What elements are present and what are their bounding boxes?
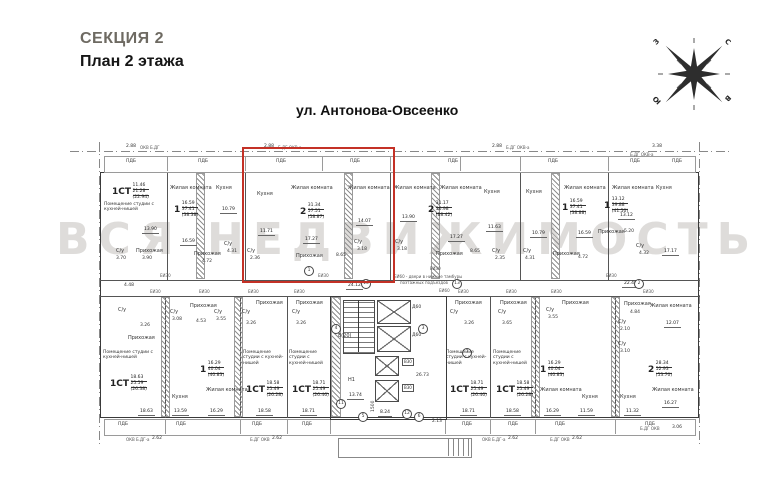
apartment-label: 2 31.1756.98(58.42) — [428, 202, 452, 219]
apartment-label: 1 16.2940.04(40.83) — [200, 362, 224, 379]
section-title: СЕКЦИЯ 2 — [80, 30, 164, 48]
dim: 16.59 — [576, 232, 593, 238]
balcony-label: ПДБ — [508, 422, 518, 427]
room-area: 3.70 — [116, 257, 126, 262]
room-label-kitchen: Кухня — [216, 186, 232, 192]
room-label-studio: Помещение студии с кухней-нишей — [104, 202, 156, 213]
dim: 26.73 — [416, 374, 429, 379]
room-label-hall: Прихожая — [296, 301, 323, 307]
room-area: 3.55 — [216, 318, 226, 323]
room-area: 4.53 — [196, 320, 206, 325]
marker-circle: 3 — [418, 324, 428, 334]
room-label-wc: С/у — [292, 310, 300, 316]
dim: 2.88 — [492, 145, 502, 150]
wall — [287, 296, 288, 418]
room-label-hall: Прихожая — [128, 336, 155, 342]
apartment-label: 1 16.2940.04(40.83) — [540, 362, 564, 379]
room-label-wc: С/у — [118, 308, 126, 314]
dim-vertical: 1500 — [372, 401, 377, 412]
dim: 2.88 — [126, 145, 136, 150]
balcony-separator — [240, 419, 241, 434]
lift-door-mark: Д60 — [412, 306, 421, 311]
room-label-living: Жилая комната — [394, 186, 436, 192]
staircase-divider — [358, 300, 359, 352]
dim: 2.13 — [432, 420, 442, 425]
window-mark: Б.ДГ ОКВ — [250, 437, 270, 442]
balcony-label: ПДБ — [126, 159, 136, 164]
lift-door-mark: Д60 — [412, 334, 421, 339]
fire-door-mark: ЕИ30 — [294, 289, 305, 294]
shaft-hatch — [235, 298, 242, 416]
room-area: 3.26 — [246, 322, 256, 327]
room-label-wc: С/у — [214, 310, 222, 316]
dim: 2.62 — [508, 437, 518, 442]
apartment-label: 1СТ 18.6325.59(26.38) — [110, 376, 147, 393]
apartment-label: 1 16.5937.41(38.88) — [562, 200, 586, 217]
room-label-wc: С/у — [498, 310, 506, 316]
room-label-wc: С/у — [618, 342, 626, 348]
dim: 16.29 — [544, 410, 561, 416]
room-label-hall: Прихожая — [190, 304, 217, 310]
dim: 2.62 — [572, 437, 582, 442]
apartment-label: 1СТ 18.7125.49(26.46) — [292, 382, 329, 399]
stair-id: Н1 — [348, 378, 355, 384]
wall — [608, 172, 609, 280]
room-label-hall: Прихожая — [436, 252, 463, 258]
balcony-label: ПДБ — [630, 159, 640, 164]
apartment-label: 1СТ 18.5825.49(26.28) — [246, 382, 283, 399]
room-label-living: Жилая комната — [612, 186, 654, 192]
window-mark: ОКВ Б.ДГ-а — [482, 437, 505, 442]
vent-mark: В30 — [402, 358, 414, 366]
room-area: 8.65 — [470, 250, 480, 255]
elevator-shaft — [377, 326, 411, 352]
floor-plan-page: { "header":{"section":"СЕКЦИЯ 2","floor"… — [0, 0, 784, 500]
compass-rose: З С Ю В — [650, 30, 738, 118]
balcony-label: ПДБ — [198, 159, 208, 164]
room-label-kitchen: Кухня — [172, 395, 188, 401]
room-area: 4.72 — [202, 260, 212, 265]
dim: 3.06 — [672, 426, 682, 431]
dim: 3.38 — [652, 145, 662, 150]
room-area: 3.90 — [142, 257, 152, 262]
room-area: 2.35 — [495, 257, 505, 262]
balcony-separator — [608, 156, 609, 171]
dim: 11.32 — [624, 410, 641, 416]
door-note-line1: ЕИ60 - двери в нижние тамбуры — [394, 274, 462, 279]
dim: 8.24 — [378, 411, 392, 417]
room-label-wc: С/у — [450, 310, 458, 316]
room-label-wc: С/у — [636, 244, 644, 250]
room-area: 3.55 — [548, 316, 558, 321]
balcony-separator — [535, 419, 536, 434]
balcony-separator — [615, 419, 616, 434]
balcony-label: ПДБ — [176, 422, 186, 427]
balcony-separator — [287, 419, 288, 434]
room-label-living: Жилая комната — [564, 186, 606, 192]
room-label-studio: Помещение студии с кухней-нишей — [289, 350, 329, 366]
window-mark: Б.ДГ ОКВ — [640, 426, 660, 431]
balcony-label: ПДБ — [555, 422, 565, 427]
room-label-wc: С/у — [170, 310, 178, 316]
room-label-wc: С/у — [618, 320, 626, 326]
room-area: 3.18 — [397, 248, 407, 253]
dim: 18.63 — [138, 410, 155, 416]
room-area: 3.26 — [464, 322, 474, 327]
room-label-hall: Прихожая — [598, 230, 625, 236]
room-label-wc: С/у — [395, 240, 403, 246]
room-area: 5.20 — [624, 230, 634, 235]
dim: 18.58 — [504, 410, 521, 416]
balcony-label: ПДБ — [252, 422, 262, 427]
room-label-studio: Помещение студии с кухней-нишей — [243, 350, 285, 366]
shaft-hatch — [612, 298, 619, 416]
dim: 11.59 — [578, 410, 595, 416]
room-label-hall: Прихожая — [256, 301, 283, 307]
stair-flight-label: 8(20) — [338, 334, 351, 340]
room-area: 3.08 — [172, 318, 182, 323]
room-label-hall: Прихожая — [624, 302, 651, 308]
shaft-hatch — [162, 298, 169, 416]
fire-door-mark: ЕИ30 — [248, 289, 259, 294]
room-label-hall: Прихожая — [136, 249, 163, 255]
room-label-living: Жилая комната — [540, 388, 582, 394]
dim: 4.48 — [124, 284, 134, 289]
balcony-separator — [490, 419, 491, 434]
dim: 12.07 — [664, 322, 681, 328]
street-title: ул. Антонова-Овсеенко — [296, 102, 458, 118]
dim: 10.79 — [220, 208, 237, 214]
fire-door-mark: ЕИ30 — [160, 273, 171, 278]
room-label-hall: Прихожая — [562, 301, 589, 307]
room-label-wc: С/у — [116, 249, 124, 255]
room-label-kitchen: Кухня — [582, 395, 598, 401]
balcony-separator — [460, 156, 461, 171]
dim: 17.27 — [448, 236, 465, 242]
apartment-label: 1 16.5937.41(38.38) — [174, 202, 198, 219]
fire-door-mark: ЕИ30 — [430, 266, 441, 271]
marker-circle: 11 — [336, 399, 346, 409]
room-label-studio: Помещение студии с кухней-нишей — [446, 350, 488, 366]
apartment-label: 1СТ 11.4621.28(22.94) — [112, 184, 149, 201]
marker-circle: 12 — [402, 409, 412, 419]
elevator-shaft — [377, 300, 411, 324]
balcony-separator — [445, 419, 446, 434]
balcony-separator — [520, 156, 521, 171]
floor-plan-drawing: ПДБ ПДБ ПДБ ПДБ ПДБ ПДБ ПДБ ПДБ 2.88 ОКВ… — [100, 150, 700, 442]
window-mark: Б.ДГ ОКВ — [550, 437, 570, 442]
window-mark: Б.ДГ ОКВ-а — [630, 152, 653, 157]
room-label-kitchen: Кухня — [526, 190, 542, 196]
apartment-label: 1СТ 18.5825.49(26.28) — [496, 382, 533, 399]
room-area: 4.84 — [630, 311, 640, 316]
marker-circle: 4 — [331, 324, 341, 334]
window-mark: ОКВ Б.ДГ-а — [126, 437, 149, 442]
wall — [520, 172, 521, 280]
marker-circle: 5 — [358, 412, 368, 422]
room-label-hall: Прихожая — [455, 301, 482, 307]
dim: 13.59 — [172, 410, 189, 416]
dim: 16.29 — [208, 410, 225, 416]
room-area: 4.31 — [525, 257, 535, 262]
room-area: 4.72 — [578, 256, 588, 261]
room-label-wc: С/у — [546, 308, 554, 314]
marker-circle: 6 — [414, 412, 424, 422]
highlight-rectangle — [242, 147, 395, 283]
room-label-living: Жилая комната — [170, 186, 212, 192]
room-label-wc: С/у — [242, 310, 250, 316]
wall — [490, 296, 491, 418]
dim: 18.71 — [460, 410, 477, 416]
elevator-shaft — [375, 380, 399, 402]
room-label-living: Жилая комната — [652, 388, 694, 394]
room-label-studio: Помещение студии с кухней-нишей — [493, 350, 533, 366]
fire-door-mark-60: ЕИ60 — [439, 288, 450, 293]
balcony-separator — [330, 419, 331, 434]
marker-circle: 2 — [634, 279, 644, 289]
fire-door-mark: ЕИ30 — [606, 273, 617, 278]
room-label-kitchen: Кухня — [484, 190, 500, 196]
room-area: 3.10 — [620, 350, 630, 355]
axis-line-right — [699, 142, 700, 444]
room-area: 4.32 — [639, 252, 649, 257]
fire-door-mark: ЕИ30 — [150, 289, 161, 294]
fire-door-mark: ЕИ30 — [199, 289, 210, 294]
elevator-shaft — [375, 356, 399, 376]
shaft-hatch — [552, 174, 559, 278]
apartment-label: 2 28.3452.93(53.70) — [648, 362, 672, 379]
room-area: 4.31 — [227, 250, 237, 255]
room-label-kitchen: Кухня — [656, 186, 672, 192]
dim: 18.71 — [300, 410, 317, 416]
vent-mark: В30 — [402, 384, 414, 392]
fire-door-mark: ЕИ30 — [643, 289, 654, 294]
balcony-label: ПДБ — [548, 159, 558, 164]
balcony-label: ПДБ — [462, 422, 472, 427]
room-area: 3.26 — [296, 322, 306, 327]
dim: 11.63 — [486, 226, 503, 232]
entrance-steps — [448, 438, 470, 456]
balcony-label: ПДБ — [302, 422, 312, 427]
balcony-separator — [167, 156, 168, 171]
balcony-separator — [165, 419, 166, 434]
window-mark: ОКВ Б.ДГ — [140, 145, 160, 150]
shaft-hatch — [532, 298, 539, 416]
room-label-wc: С/у — [492, 249, 500, 255]
fire-door-mark: ЕИ30 — [458, 289, 469, 294]
floor-title: План 2 этажа — [80, 53, 184, 71]
dim: 2.62 — [272, 437, 282, 442]
room-label-living: Жилая комната — [440, 186, 482, 192]
room-label-living: Жилая комната — [650, 304, 692, 310]
dim: 13.74 — [347, 394, 364, 400]
apartment-label: 1СТ 18.7125.49(26.46) — [450, 382, 487, 399]
room-label-hall: Прихожая — [500, 301, 527, 307]
dim: 2.62 — [152, 437, 162, 442]
room-label-kitchen: Кухня — [620, 395, 636, 401]
dim: 16.27 — [662, 402, 679, 408]
room-label-wc: С/у — [224, 242, 232, 248]
room-label-studio: Помещение студии с кухней-нишей — [103, 350, 155, 361]
window-mark: Б.ДГ ОКВ-а — [506, 145, 529, 150]
room-label-living: Жилая комната — [206, 388, 248, 394]
fire-door-mark: ЕИ30 — [551, 289, 562, 294]
room-label-hall: Прихожая — [553, 252, 580, 258]
marker-circle: 13 — [452, 279, 462, 289]
dim: 13.90 — [400, 216, 417, 222]
balcony-label: ПДБ — [118, 422, 128, 427]
dim: 17.17 — [662, 250, 679, 256]
room-label-wc: С/у — [523, 249, 531, 255]
dim: 18.58 — [256, 410, 273, 416]
room-area: 3.26 — [140, 324, 150, 329]
room-area: 3.65 — [502, 322, 512, 327]
dim: 10.79 — [530, 232, 547, 238]
balcony-label: ПДБ — [448, 159, 458, 164]
dim: 13.12 — [618, 214, 635, 220]
staircase — [343, 300, 375, 354]
dim: 13.90 — [142, 228, 159, 234]
balcony-label: ПДБ — [672, 159, 682, 164]
balcony-strip-bottom — [104, 419, 696, 436]
door-note-line2: поэтажных подъездов — [400, 280, 448, 285]
fire-door-mark: ЕИ30 — [506, 289, 517, 294]
room-area: 2.10 — [620, 328, 630, 333]
room-label-hall: Прихожая — [194, 252, 221, 258]
wall — [167, 172, 168, 280]
dim: 16.59 — [180, 240, 197, 246]
